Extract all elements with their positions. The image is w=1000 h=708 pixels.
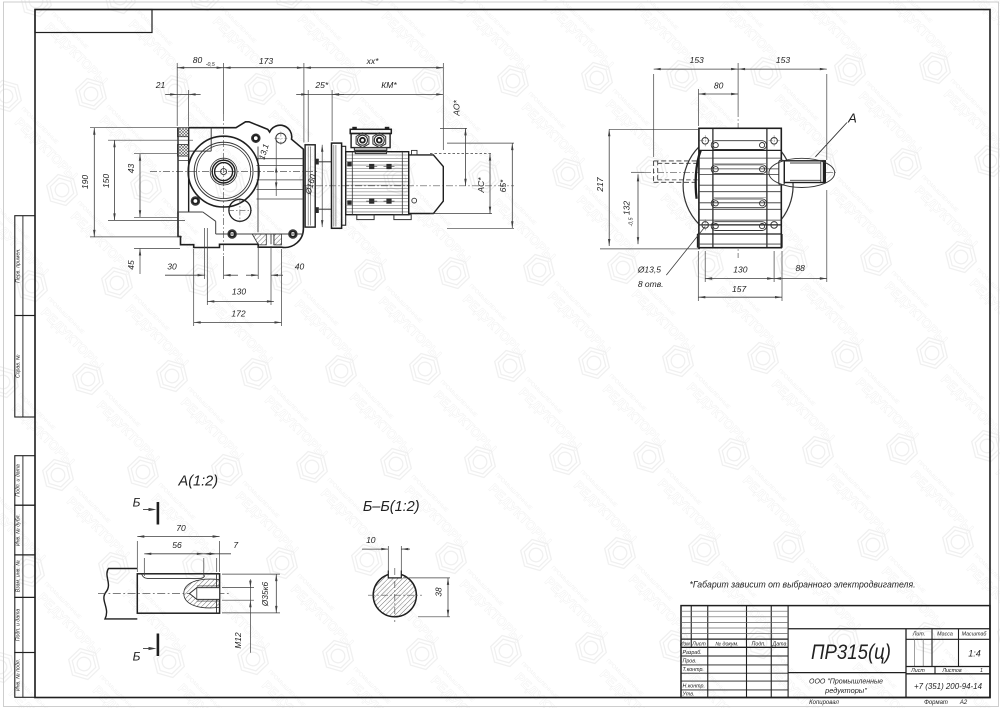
svg-text:1: 1 <box>980 668 983 674</box>
svg-text:+7 (351) 200-94-14: +7 (351) 200-94-14 <box>914 682 983 691</box>
svg-text:150: 150 <box>101 174 111 188</box>
svg-text:56: 56 <box>172 540 182 550</box>
svg-text:Утв.: Утв. <box>683 692 695 698</box>
svg-text:AO*: AO* <box>451 100 461 117</box>
svg-text:Пров.: Пров. <box>683 658 697 664</box>
svg-text:Подп. и дата: Подп. и дата <box>16 609 22 642</box>
svg-text:Копировал: Копировал <box>809 700 839 706</box>
svg-text:ООО "Промышленные: ООО "Промышленные <box>809 677 883 686</box>
svg-text:№ докум.: № докум. <box>715 641 738 647</box>
svg-text:Т.контр.: Т.контр. <box>683 667 704 673</box>
svg-text:88: 88 <box>795 263 805 273</box>
svg-text:153: 153 <box>776 55 790 65</box>
svg-text:*Габарит зависит от выбранного: *Габарит зависит от выбранного электродв… <box>690 580 916 590</box>
svg-text:8 отв.: 8 отв. <box>638 279 664 289</box>
svg-text:Лист: Лист <box>910 668 925 674</box>
svg-text:Лист: Лист <box>691 641 706 647</box>
svg-text:А2: А2 <box>959 700 968 706</box>
svg-text:Дата: Дата <box>772 641 787 647</box>
svg-text:М12: М12 <box>233 632 243 649</box>
svg-text:xx*: xx* <box>366 56 380 66</box>
svg-text:-0,5: -0,5 <box>206 62 215 68</box>
svg-text:157: 157 <box>732 284 746 294</box>
svg-text:А: А <box>847 111 857 126</box>
svg-text:7: 7 <box>233 540 238 550</box>
svg-text:217: 217 <box>595 177 605 192</box>
svg-text:Ø35к6: Ø35к6 <box>260 582 270 608</box>
svg-text:70: 70 <box>176 523 186 533</box>
svg-text:Перв. примен.: Перв. примен. <box>16 248 22 282</box>
svg-text:Б: Б <box>133 496 141 510</box>
svg-text:172: 172 <box>231 308 245 318</box>
svg-text:153: 153 <box>690 55 704 65</box>
svg-text:КМ*: КМ* <box>381 80 397 90</box>
svg-text:30: 30 <box>167 261 177 271</box>
svg-text:Инв. № подл.: Инв. № подл. <box>16 659 22 691</box>
svg-text:AC*: AC* <box>476 177 486 194</box>
svg-text:Ø13,5: Ø13,5 <box>637 264 661 274</box>
svg-text:190: 190 <box>80 175 90 189</box>
svg-text:А(1:2): А(1:2) <box>178 474 219 490</box>
svg-text:1:4: 1:4 <box>968 649 981 659</box>
svg-text:65*: 65* <box>498 179 508 192</box>
svg-text:Листов: Листов <box>941 668 962 674</box>
svg-text:132: 132 <box>622 201 632 215</box>
svg-text:Взам. инв. №: Взам. инв. № <box>16 560 22 592</box>
svg-text:130: 130 <box>733 264 747 274</box>
svg-text:80: 80 <box>714 80 724 90</box>
svg-text:Н.контр.: Н.контр. <box>683 684 705 690</box>
svg-text:Разраб.: Разраб. <box>683 650 702 656</box>
svg-text:21: 21 <box>155 80 166 90</box>
svg-text:Масштаб: Масштаб <box>962 631 988 637</box>
svg-text:Масса: Масса <box>937 631 953 637</box>
svg-text:Лит.: Лит. <box>912 631 925 637</box>
svg-text:10: 10 <box>366 535 376 545</box>
svg-text:Справ. №: Справ. № <box>16 354 22 378</box>
svg-text:редукторы": редукторы" <box>824 686 867 695</box>
svg-text:38: 38 <box>434 587 444 597</box>
svg-text:Б: Б <box>133 650 141 664</box>
svg-text:130: 130 <box>232 287 246 297</box>
svg-text:Изм: Изм <box>680 641 690 647</box>
svg-text:Подп.: Подп. <box>752 641 766 647</box>
svg-text:173: 173 <box>259 56 273 66</box>
svg-text:Формат: Формат <box>924 700 948 706</box>
svg-text:40: 40 <box>295 261 305 271</box>
svg-text:45: 45 <box>126 260 136 270</box>
svg-text:25*: 25* <box>314 80 328 90</box>
svg-text:Б–Б(1:2): Б–Б(1:2) <box>363 499 420 515</box>
svg-text:43: 43 <box>126 164 136 174</box>
svg-text:Инв. № дубл.: Инв. № дубл. <box>16 514 22 546</box>
svg-text:ПР315(ц): ПР315(ц) <box>811 641 891 664</box>
svg-text:-0,5: -0,5 <box>629 217 635 226</box>
svg-text:80: 80 <box>193 55 203 65</box>
svg-text:Подп. и дата: Подп. и дата <box>16 464 22 497</box>
